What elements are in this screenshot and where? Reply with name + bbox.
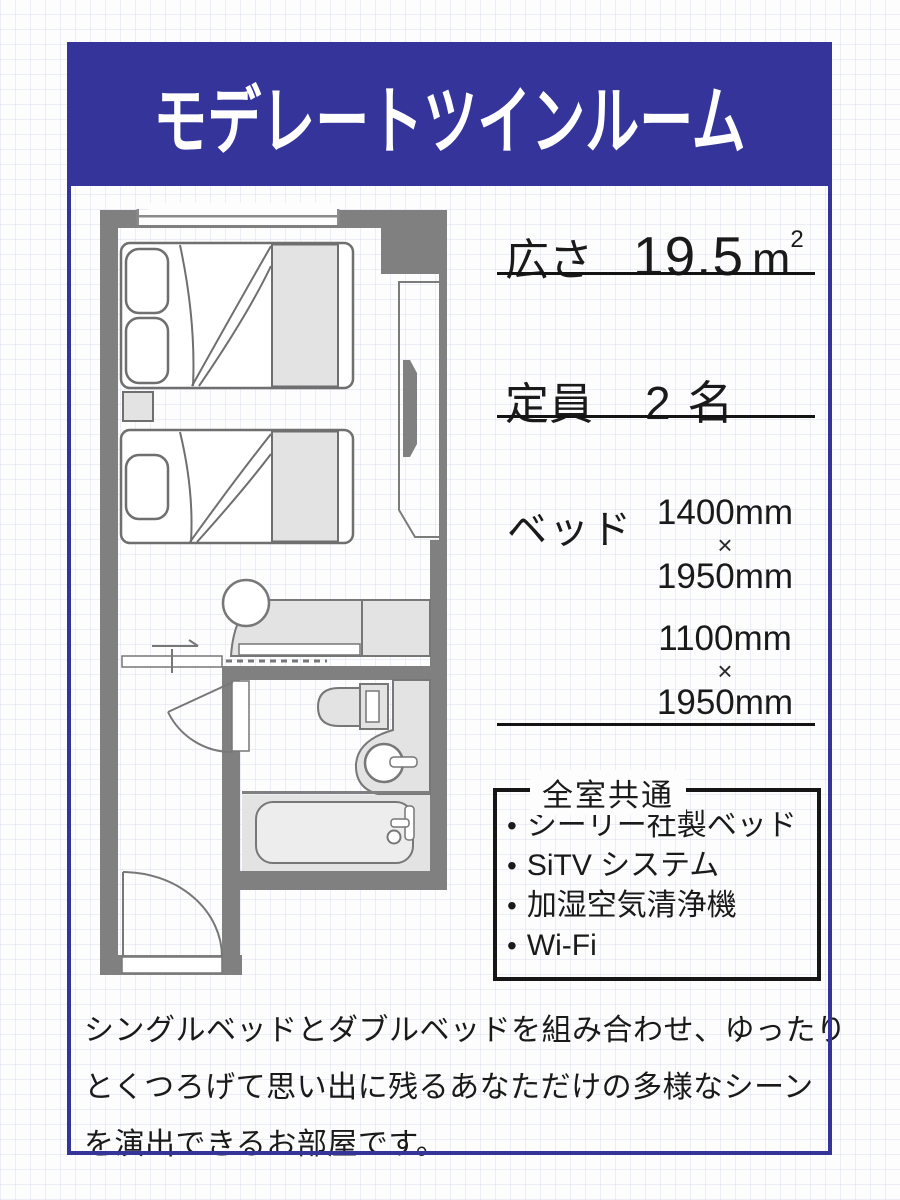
nightstand <box>123 392 153 421</box>
underline <box>497 415 815 418</box>
list-item: •加湿空気清浄機 <box>507 886 817 926</box>
underline <box>497 272 815 275</box>
pillow <box>126 455 168 519</box>
bed-size-2: 1100mm × 1950mm <box>640 620 810 722</box>
page-title: モデレートツインルーム <box>153 59 745 168</box>
area-value: 19.5 <box>633 224 744 288</box>
entrance-door <box>122 872 222 973</box>
toilet <box>318 684 388 729</box>
bed-sizes: 1400mm × 1950mm 1100mm × 1950mm <box>640 494 810 722</box>
room-description: シングルベッドとダブルベッドを組み合わせ、ゆったり とくつろげて思い出に残るあな… <box>84 1002 829 1173</box>
faucet-icon <box>391 819 409 827</box>
amenities-title: 全室共通 <box>530 770 686 815</box>
title-banner: モデレートツインルーム <box>67 42 832 186</box>
amenities-list: •シーリー社製ベッド •SiTV システム •加湿空気清浄機 •Wi-Fi <box>497 806 817 966</box>
bullet-icon: • <box>507 846 517 886</box>
double-bed <box>121 243 353 388</box>
capacity-value: 2 名 <box>645 367 735 433</box>
list-item: •SiTV システム <box>507 846 817 886</box>
faucet-icon <box>390 757 417 767</box>
pillow <box>126 318 168 383</box>
bed-size-1: 1400mm × 1950mm <box>640 494 810 596</box>
pillow <box>126 249 168 313</box>
description-line: とくつろげて思い出に残るあなただけの多様なシーン <box>84 1059 829 1116</box>
capacity-row: 定員 2 名 <box>505 367 735 433</box>
bullet-icon: • <box>507 886 517 926</box>
desk-chair <box>223 580 269 626</box>
room-info-sheet: { "header": { "title": "モデレートツインルーム" }, … <box>0 0 900 1200</box>
bathroom-door <box>168 681 249 752</box>
window-icon <box>137 203 340 225</box>
area-label: 広さ <box>505 224 593 288</box>
area-unit: m2 <box>752 226 804 286</box>
description-line: シングルベッドとダブルベッドを組み合わせ、ゆったり <box>84 1002 829 1059</box>
amenities-box: •シーリー社製ベッド •SiTV システム •加湿空気清浄機 •Wi-Fi <box>493 788 821 981</box>
bullet-icon: • <box>507 926 517 966</box>
floor-plan <box>95 200 451 992</box>
list-item: •Wi-Fi <box>507 926 817 966</box>
area-row: 広さ 19.5 m2 <box>505 224 804 288</box>
bathtub <box>242 791 430 871</box>
bed-label: ベッド <box>507 497 633 555</box>
capacity-label: 定員 <box>505 368 593 432</box>
description-line: を演出できるお部屋です。 <box>84 1116 829 1173</box>
underline <box>497 723 815 726</box>
closet <box>399 282 440 537</box>
bullet-icon: • <box>507 806 517 846</box>
single-bed <box>121 430 353 543</box>
